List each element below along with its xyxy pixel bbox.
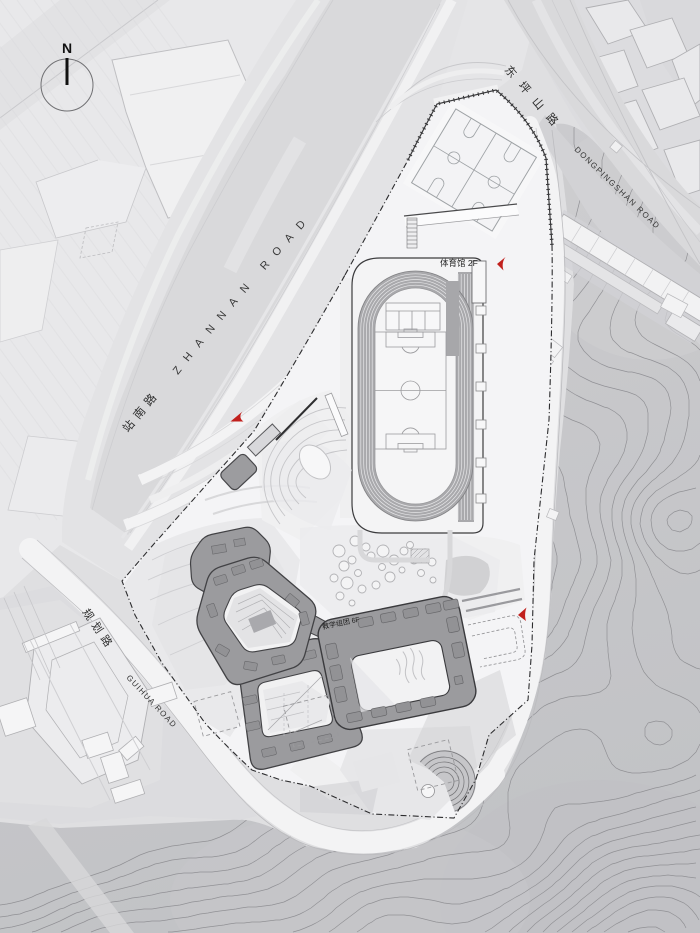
svg-text:体育馆 2F: 体育馆 2F — [440, 258, 478, 268]
svg-text:N: N — [62, 40, 72, 56]
